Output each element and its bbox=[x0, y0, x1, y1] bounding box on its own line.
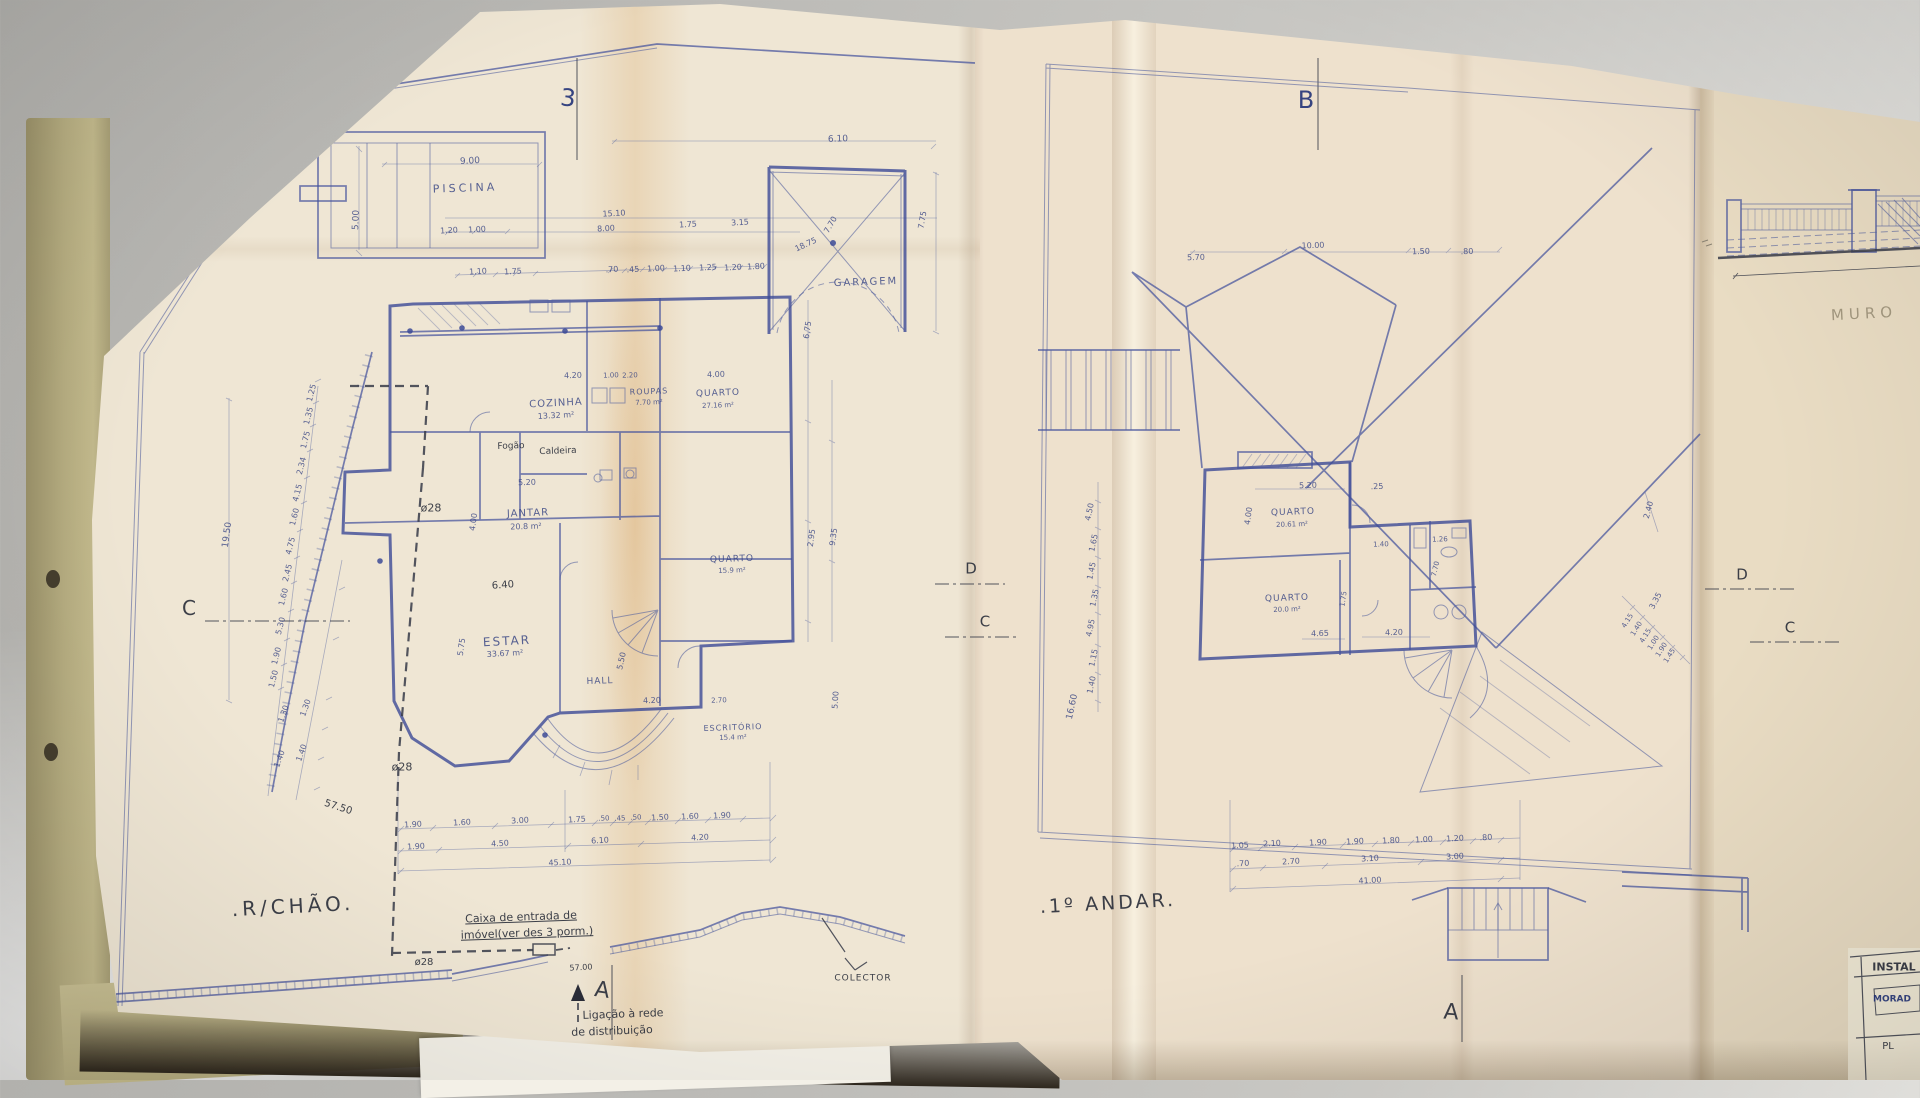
dimension-text: 2.10 bbox=[1263, 840, 1281, 849]
sheet-title-1andar: .1º ANDAR. bbox=[1039, 891, 1176, 917]
dimension-text: 1.75 bbox=[679, 221, 697, 230]
dimension-text: 33.67 m² bbox=[487, 649, 524, 659]
room-label-jantar: JANTAR bbox=[507, 508, 550, 519]
section-marker-c-right: C bbox=[1785, 621, 1795, 636]
dimension-text: 7.70 bbox=[823, 215, 839, 234]
room-label-hall: HALL bbox=[586, 677, 613, 687]
room-label-roupas: ROUPAS bbox=[630, 387, 669, 396]
dimension-text: 1.90 bbox=[407, 843, 425, 852]
titleblock-morad: MORAD bbox=[1873, 996, 1911, 1005]
dimension-text: 5.20 bbox=[518, 479, 536, 488]
dimension-text: 4.50 bbox=[1084, 502, 1096, 521]
dimension-text: 1.60 bbox=[453, 819, 471, 828]
dimension-text: 1.60 bbox=[289, 507, 301, 526]
dimension-text: .80 bbox=[1460, 248, 1473, 256]
dimension-text: 4.65 bbox=[1311, 630, 1329, 639]
dimension-text: 9.00 bbox=[460, 157, 480, 167]
dimension-text: 5.30 bbox=[275, 616, 287, 635]
note-fogao: Fogão bbox=[497, 442, 524, 452]
dimension-text: 1.10 bbox=[673, 265, 691, 274]
note-colector: COLECTOR bbox=[834, 975, 891, 984]
dimension-text: 5.20 bbox=[1299, 482, 1317, 491]
dimension-text: 1.00 bbox=[468, 226, 486, 235]
dimension-text: 19.50 bbox=[222, 522, 234, 549]
dimension-text: 57.50 bbox=[323, 799, 353, 817]
dimension-text: 1.20 bbox=[440, 227, 458, 236]
dimension-text: 5.00 bbox=[352, 210, 362, 230]
dimension-text: 1.15 bbox=[1088, 648, 1100, 667]
dimension-text: 1.26 bbox=[1432, 536, 1448, 544]
dimension-text: 13.32 m² bbox=[538, 411, 575, 421]
room-label-quarto-2: QUARTO bbox=[710, 555, 754, 566]
dimension-text: 15.10 bbox=[602, 209, 625, 218]
room-label-quarto-3: QUARTO bbox=[1271, 508, 1315, 519]
dimension-text: 1.40 bbox=[1086, 675, 1098, 694]
dimension-text: 4.50 bbox=[491, 840, 509, 849]
dimension-text: 1.20 bbox=[1446, 835, 1464, 844]
dimension-text: 4.75 bbox=[285, 536, 297, 555]
dimension-text: 41.00 bbox=[1358, 876, 1381, 885]
dimension-text: 5.50 bbox=[616, 651, 628, 670]
dimension-text: 2.45 bbox=[282, 563, 294, 582]
dimension-text: 1.00 bbox=[603, 372, 619, 380]
dimension-text: 1.35 bbox=[303, 406, 315, 425]
dimension-text: 3.35 bbox=[1648, 591, 1663, 610]
dimension-text: 4.20 bbox=[643, 697, 661, 706]
dimension-text: 10.00 bbox=[1301, 242, 1324, 251]
note-ligacao-line2: de distribuição bbox=[571, 1024, 653, 1038]
dimension-text: 7.70 bbox=[1431, 561, 1441, 578]
dimension-text: 4.20 bbox=[564, 372, 582, 381]
dimension-text: 1.65 bbox=[1088, 533, 1100, 552]
dimension-text: 1.75 bbox=[300, 430, 312, 449]
dimension-text: 20.61 m² bbox=[1276, 521, 1308, 529]
dimension-text: 4.00 bbox=[707, 371, 725, 380]
section-marker-d-right: D bbox=[1736, 568, 1748, 583]
dimension-text: .70 bbox=[605, 266, 618, 275]
dimension-text: ø28 bbox=[421, 503, 442, 514]
dimension-text: 4.20 bbox=[691, 834, 709, 843]
dimension-text: 7.70 m² bbox=[635, 399, 663, 407]
dimension-text: 4.00 bbox=[469, 513, 479, 532]
dimension-text: 1.90 bbox=[713, 812, 731, 821]
dimension-text: 1.30 bbox=[277, 704, 291, 723]
dimension-text: 4.15 bbox=[292, 483, 304, 502]
dimension-text: 1.90 bbox=[1309, 839, 1327, 848]
dimension-text: 1.25 bbox=[306, 383, 318, 402]
titleblock-instal: INSTAL bbox=[1872, 962, 1915, 973]
dimension-text: C bbox=[980, 615, 990, 630]
section-marker-b: B bbox=[1298, 88, 1314, 112]
dimension-text: .45 bbox=[626, 266, 639, 275]
dimension-text: 2.70 bbox=[1282, 858, 1300, 867]
note-caldeira: Caldeira bbox=[539, 447, 577, 457]
section-marker-d-left: D bbox=[965, 562, 977, 577]
dimension-text: 2.20 bbox=[622, 372, 638, 380]
dimension-text: 5.70 bbox=[1187, 254, 1205, 263]
dimension-text: 3.10 bbox=[1361, 855, 1379, 864]
dimension-text: 1.50 bbox=[1412, 248, 1430, 257]
dimension-text: 1.45 bbox=[1086, 561, 1098, 580]
dimension-text: .70 bbox=[1236, 860, 1249, 869]
dimension-text: 18.75 bbox=[794, 237, 818, 254]
dimension-text: 4.95 bbox=[1085, 618, 1097, 637]
dimension-text: 1.90 bbox=[404, 821, 422, 830]
dimension-text: 4.00 bbox=[1244, 507, 1254, 526]
dimension-text: 1.40 bbox=[295, 743, 309, 762]
dimension-text: 1.00 bbox=[647, 265, 665, 274]
room-label-garagem: GARAGEM bbox=[834, 277, 899, 289]
section-marker-a-right: A bbox=[1443, 1002, 1460, 1025]
room-label-escritorio: ESCRITÓRIO bbox=[703, 723, 762, 733]
dimension-text: 5.00 bbox=[831, 691, 840, 709]
dimension-text: 3.00 bbox=[511, 817, 529, 826]
room-label-cozinha: COZINHA bbox=[529, 398, 583, 411]
dimension-text: 27.16 m² bbox=[702, 402, 734, 410]
dimension-text: 2.40 bbox=[1643, 500, 1655, 519]
dimension-text: 1.75 bbox=[1339, 591, 1348, 607]
dimension-text: .50 bbox=[598, 815, 609, 823]
punch-hole bbox=[44, 743, 58, 761]
note-caixa-line1: Caixa de entrada de bbox=[465, 910, 577, 925]
dimension-text: 1.80 bbox=[1382, 837, 1400, 846]
dimension-text: 3.00 bbox=[1446, 853, 1464, 862]
dimension-text: 1.60 bbox=[278, 587, 290, 606]
dimension-text: 1.10 bbox=[469, 268, 487, 277]
dimension-text: 1.40 bbox=[273, 749, 287, 768]
dimension-text: .45 bbox=[614, 815, 625, 823]
dimension-text: 2.34 bbox=[296, 456, 308, 475]
dimension-text: .80 bbox=[1479, 834, 1492, 843]
note-caixa-line2: imóvel(ver des 3 porm.) bbox=[461, 925, 594, 941]
section-marker-a-left: A bbox=[593, 979, 611, 1003]
room-label-estar: ESTAR bbox=[483, 634, 532, 649]
dimension-text: 2.70 bbox=[711, 697, 727, 705]
dimension-text: 1.50 bbox=[651, 814, 669, 823]
section-marker-3: 3 bbox=[559, 85, 577, 110]
dimension-text: 1.00 bbox=[1415, 836, 1433, 845]
dimension-text: 8.00 bbox=[597, 225, 615, 234]
dimension-text: ø28 bbox=[415, 958, 434, 968]
dimension-text: .25 bbox=[1370, 483, 1383, 491]
dimension-text: 15.9 m² bbox=[718, 567, 746, 575]
dimension-text: 1.75 bbox=[504, 268, 522, 277]
punch-hole bbox=[46, 570, 60, 588]
dimension-text: 15.4 m² bbox=[719, 734, 747, 742]
dimension-text: 45.10 bbox=[548, 858, 571, 867]
dimension-text: 1.90 bbox=[1346, 838, 1364, 847]
note-ligacao-line1: Ligação à rede bbox=[582, 1007, 663, 1021]
dimension-text: 16.60 bbox=[1066, 693, 1080, 720]
dimension-text: 1.25 bbox=[699, 264, 717, 273]
room-label-piscina: PISCINA bbox=[433, 181, 498, 194]
room-label-quarto-4: QUARTO bbox=[1265, 594, 1309, 605]
dimension-text: 1.30 bbox=[299, 698, 313, 717]
room-label-quarto-1: QUARTO bbox=[696, 389, 740, 400]
dimension-text: 5.75 bbox=[457, 638, 467, 657]
dimension-text: 20.0 m² bbox=[1273, 606, 1301, 614]
dimension-text: 6.10 bbox=[591, 837, 609, 846]
dimension-text: 2.95 bbox=[807, 529, 817, 548]
dimension-text: 1.80 bbox=[747, 263, 765, 272]
dimension-text: 1.35 bbox=[1089, 588, 1101, 607]
section-marker-c-left: C bbox=[182, 598, 196, 618]
dimension-text: 1.20 bbox=[724, 264, 742, 273]
dimension-text: 57.00 bbox=[569, 963, 592, 972]
dimension-text: 6.75 bbox=[803, 321, 813, 340]
dimension-text: 7.75 bbox=[918, 211, 929, 230]
dimension-text: 6.10 bbox=[828, 135, 848, 145]
dimension-text: 1.40 bbox=[1373, 541, 1389, 549]
dimension-text: 9.35 bbox=[829, 528, 839, 547]
note-muro: MURO bbox=[1831, 305, 1898, 323]
dimension-text: 6.40 bbox=[492, 580, 515, 592]
dimension-text: ø28 bbox=[392, 762, 413, 773]
dimension-text: 1.90 bbox=[271, 646, 283, 665]
dimension-text: 20.8 m² bbox=[510, 522, 542, 531]
dimension-text: 1.50 bbox=[268, 669, 280, 688]
dimension-text: 1.05 bbox=[1231, 842, 1249, 851]
dimension-text: 1.60 bbox=[681, 813, 699, 822]
dimension-text: 3.15 bbox=[731, 219, 749, 228]
sheet-title-rchao: .R/CHÃO. bbox=[231, 893, 355, 919]
dimension-text: 1.75 bbox=[568, 816, 586, 825]
titleblock-pl: PL bbox=[1882, 1042, 1894, 1052]
dimension-text: .50 bbox=[630, 814, 641, 822]
dimension-text: 4.20 bbox=[1385, 629, 1403, 638]
